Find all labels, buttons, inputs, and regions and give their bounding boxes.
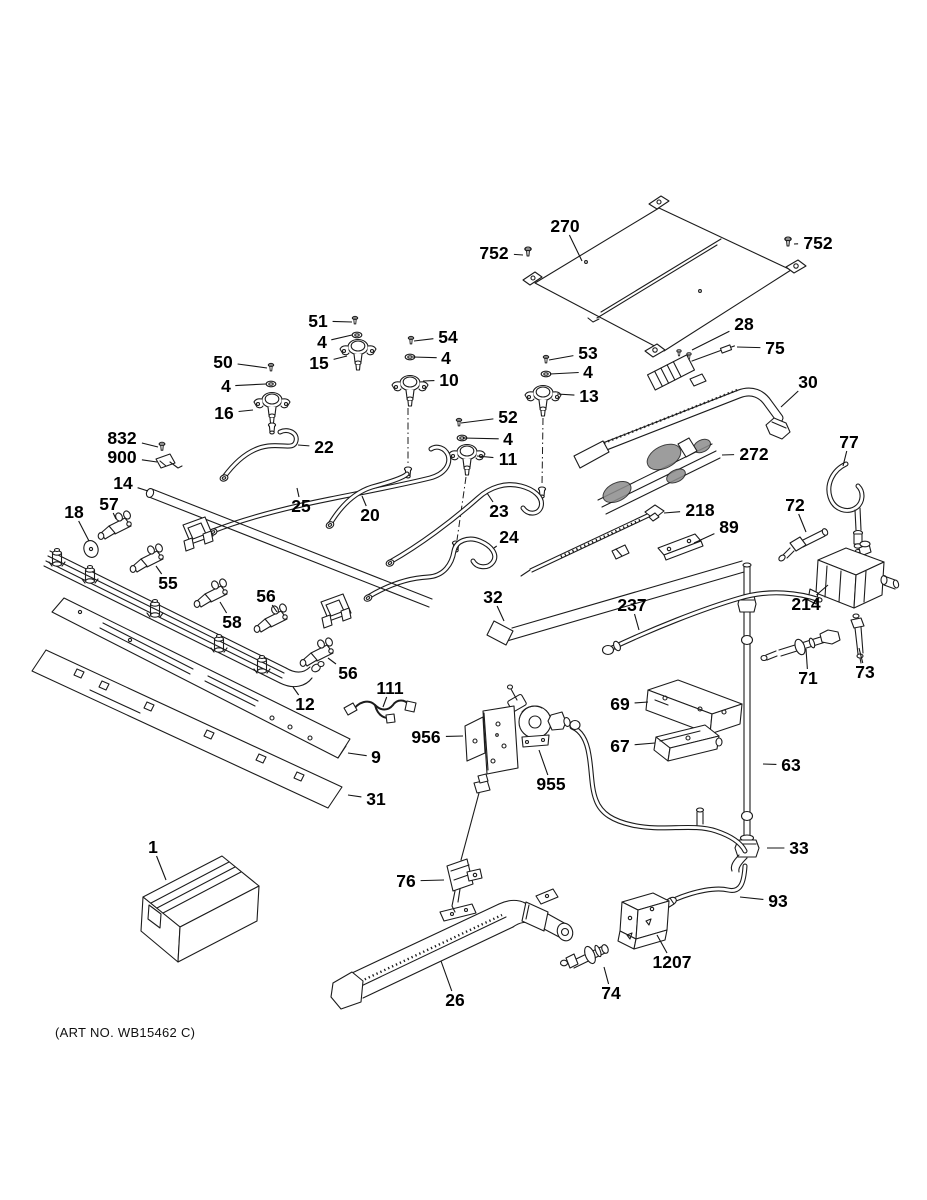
callout-leader-900 (142, 460, 157, 462)
callout-leader-51 (333, 321, 352, 322)
callout-75: 75 (765, 338, 785, 358)
callout-leader-54 (414, 339, 433, 341)
callout-93: 93 (768, 891, 788, 911)
callout-4: 4 (503, 429, 513, 449)
callout-832: 832 (107, 428, 136, 448)
callout-52: 52 (498, 407, 518, 427)
callout-24: 24 (499, 527, 519, 547)
callout-111: 111 (376, 678, 404, 698)
callout-10: 10 (439, 370, 459, 390)
callout-18: 18 (64, 502, 84, 522)
part-74-safety-valve (561, 944, 610, 968)
part-1-shipping-box (141, 856, 259, 962)
callout-25: 25 (291, 496, 311, 516)
callout-54: 54 (438, 327, 458, 347)
part-89-bracket (658, 534, 703, 560)
callout-4: 4 (317, 332, 327, 352)
part-77-loop-tube (829, 464, 863, 553)
callout-leader-67 (635, 743, 655, 745)
callout-237: 237 (617, 595, 646, 615)
callout-leader-69 (635, 702, 648, 703)
part-55-valve (130, 543, 163, 573)
callout-leader-832 (142, 443, 158, 447)
callout-leader-4 (413, 357, 437, 358)
callout-69: 69 (610, 694, 630, 714)
callout-752: 752 (803, 233, 832, 253)
callout-14: 14 (113, 473, 133, 493)
callout-900: 900 (107, 447, 136, 467)
callout-leader-52 (461, 419, 493, 423)
callout-leader-955 (539, 750, 548, 775)
callout-270: 270 (550, 216, 579, 236)
part-67-spark-module (654, 725, 722, 761)
part-13-valve (525, 386, 561, 417)
part-832-screw (159, 442, 165, 450)
callout-leader-53 (549, 356, 573, 360)
callout-76: 76 (396, 871, 416, 891)
part-955-pressure-regulator (507, 685, 580, 747)
callout-leader-752 (514, 254, 523, 255)
callout-57: 57 (99, 494, 118, 514)
callout-30: 30 (798, 372, 818, 392)
part-73-fitting (851, 614, 864, 663)
part-71-orifice-fitting (761, 630, 840, 661)
part-57-valve (98, 510, 131, 540)
callout-leader-9 (348, 753, 367, 756)
callout-leader-4 (463, 438, 499, 439)
callout-leader-111 (383, 697, 387, 707)
callout-1: 1 (148, 837, 158, 857)
callout-leader-1 (157, 856, 166, 880)
callout-leader-32 (497, 606, 504, 621)
part-15-valve (340, 340, 376, 371)
callout-leader-72 (799, 514, 806, 532)
callout-23: 23 (489, 501, 509, 521)
callout-leader-4 (550, 372, 579, 374)
callout-leader-93 (740, 897, 763, 899)
part-69-bracket (646, 680, 742, 734)
callout-272: 272 (739, 444, 768, 464)
callout-56: 56 (338, 663, 358, 683)
callout-32: 32 (483, 587, 503, 607)
callout-4: 4 (583, 362, 593, 382)
callout-12: 12 (295, 694, 315, 714)
diagram-artwork (32, 196, 899, 1009)
part-32-burner-tube (487, 545, 744, 645)
art-number-caption: (ART NO. WB15462 C) (55, 1025, 195, 1040)
part-832-900-fasteners (156, 442, 182, 468)
part-54-screw (408, 336, 413, 344)
part-218-spark-electrode (521, 505, 664, 576)
callout-89: 89 (719, 517, 739, 537)
callout-77: 77 (839, 432, 858, 452)
callout-leader-16 (239, 410, 253, 411)
callout-752: 752 (479, 243, 508, 263)
part-111-wire-harness (344, 701, 416, 724)
part-56-valve (254, 603, 287, 633)
callout-leader-270 (569, 235, 582, 261)
part-11-valve (449, 445, 485, 476)
callout-67: 67 (610, 736, 629, 756)
diagram-canvas: 2707527525145415410504165341328753083290… (0, 0, 927, 1200)
callout-15: 15 (309, 353, 329, 373)
part-51-screw (352, 316, 357, 324)
callout-leader-14 (138, 488, 148, 491)
part-18-disc (82, 539, 101, 559)
callout-71: 71 (798, 668, 818, 688)
callout-leader-22 (298, 445, 309, 446)
callout-leader-56 (328, 658, 336, 664)
callout-13: 13 (579, 386, 599, 406)
callout-4: 4 (441, 348, 451, 368)
callout-58: 58 (222, 612, 242, 632)
callout-28: 28 (734, 314, 754, 334)
callout-53: 53 (578, 343, 598, 363)
callout-55: 55 (158, 573, 178, 593)
part-22-tube (224, 431, 296, 477)
callout-955: 955 (536, 774, 565, 794)
part-16-valve (254, 393, 290, 424)
part-50-screw (268, 363, 273, 371)
callout-218: 218 (685, 500, 714, 520)
callout-leader-218 (664, 512, 680, 513)
part-76-igniter (447, 774, 490, 912)
callout-leader-4 (331, 335, 352, 340)
callout-leader-31 (348, 795, 361, 797)
part-24-tube (368, 539, 495, 597)
callout-1207: 1207 (653, 952, 692, 972)
part-burner-valves-top (254, 316, 561, 552)
callout-956: 956 (411, 727, 440, 747)
callout-4: 4 (221, 376, 231, 396)
callout-63: 63 (781, 755, 801, 775)
callout-leader-30 (781, 391, 798, 407)
callout-leader-75 (737, 347, 760, 348)
part-22-tube (224, 431, 296, 477)
callout-leader-237 (635, 614, 639, 630)
callout-leader-76 (421, 880, 444, 881)
part-63-flex-tube (738, 563, 756, 836)
callout-31: 31 (366, 789, 386, 809)
callout-50: 50 (213, 352, 233, 372)
callout-22: 22 (314, 437, 334, 457)
callout-16: 16 (214, 403, 234, 423)
callout-214: 214 (791, 594, 820, 614)
parts-diagram-page: 2707527525145415410504165341328753083290… (0, 0, 927, 1200)
callout-leader-24 (494, 546, 497, 548)
callout-72: 72 (785, 495, 805, 515)
callout-leader-18 (79, 521, 89, 541)
callout-11: 11 (499, 449, 518, 469)
part-72-elbow-fitting (778, 528, 829, 562)
callout-leader-4 (235, 384, 266, 386)
callout-56: 56 (256, 586, 276, 606)
callout-74: 74 (601, 983, 621, 1003)
callout-leader-15 (334, 356, 347, 359)
part-956-bracket (465, 706, 518, 774)
callout-51: 51 (308, 311, 328, 331)
callout-leader-50 (238, 364, 267, 368)
part-93-tube (658, 866, 745, 909)
part-1207-bracket (618, 893, 669, 949)
part-58-valve (194, 578, 227, 608)
callout-33: 33 (789, 838, 809, 858)
part-214-regulator-block (808, 541, 899, 608)
callout-20: 20 (360, 505, 380, 525)
callout-73: 73 (855, 662, 875, 682)
callout-leader-26 (441, 961, 452, 991)
part-28-screws (677, 350, 681, 356)
part-52-screw (456, 418, 461, 426)
part-10-valve (392, 376, 428, 407)
callout-leader-71 (806, 649, 807, 669)
callout-9: 9 (371, 747, 381, 767)
part-56-valve (300, 637, 333, 667)
callout-leader-74 (604, 967, 609, 984)
callout-26: 26 (445, 990, 465, 1010)
part-23-tube (390, 485, 541, 562)
part-53-screw (543, 355, 548, 363)
